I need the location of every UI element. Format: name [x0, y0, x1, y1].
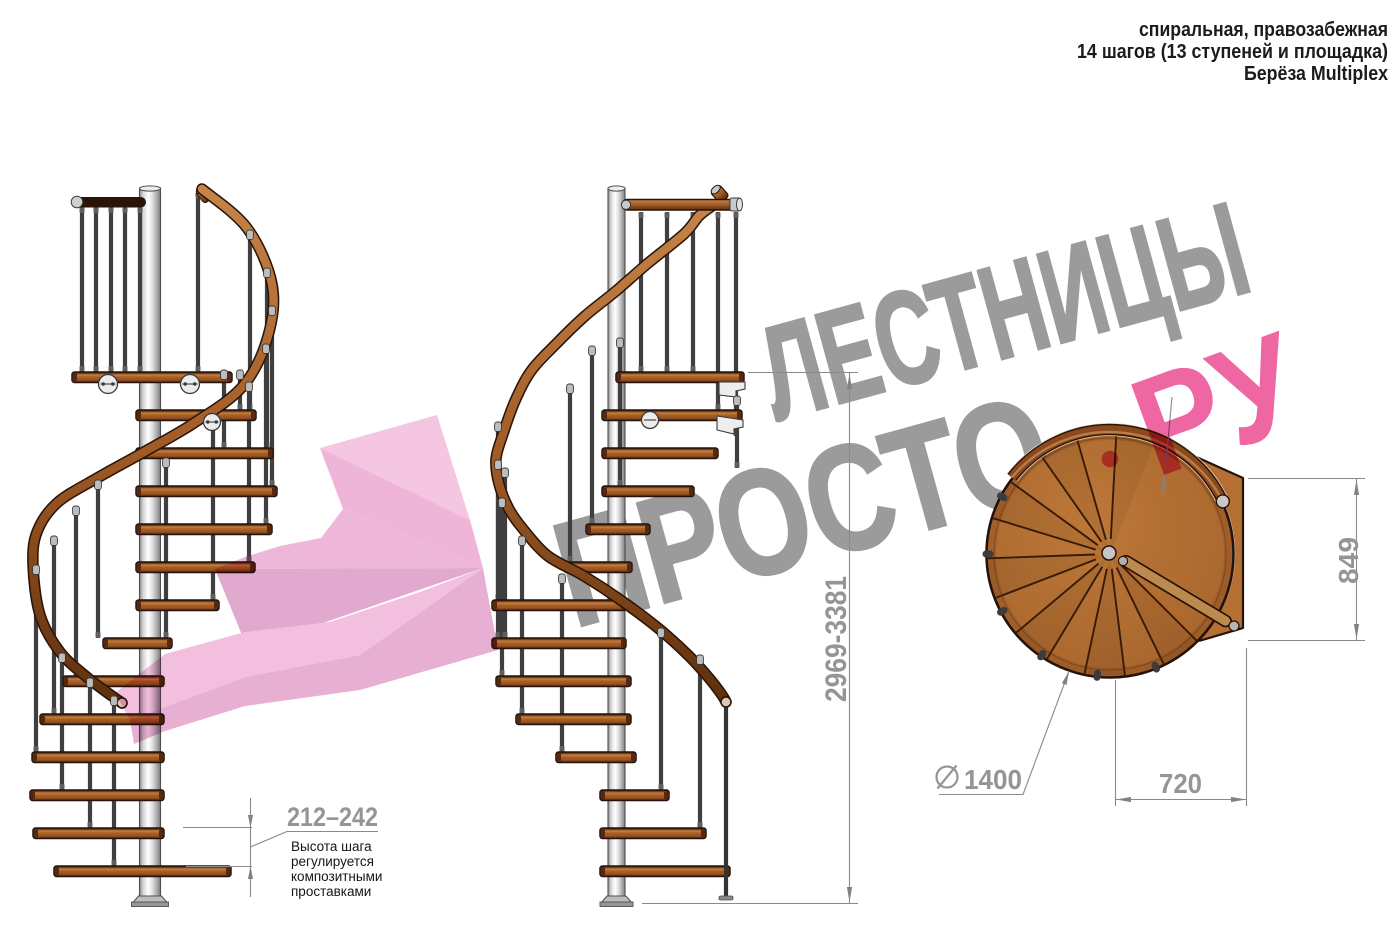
svg-text:14 шагов (13 ступеней и площад: 14 шагов (13 ступеней и площадка)	[1077, 41, 1388, 63]
svg-text:композитными: композитными	[291, 869, 382, 884]
svg-text:спиральная, правозабежная: спиральная, правозабежная	[1139, 19, 1388, 41]
svg-text:Высота шага: Высота шага	[291, 839, 372, 854]
svg-text:849: 849	[1333, 537, 1364, 584]
svg-text:720: 720	[1159, 768, 1202, 799]
svg-text:1400: 1400	[964, 764, 1022, 795]
svg-text:2969-3381: 2969-3381	[820, 576, 853, 702]
svg-text:регулируется: регулируется	[291, 854, 374, 869]
svg-text:212–242: 212–242	[287, 802, 378, 832]
svg-text:проставками: проставками	[291, 884, 371, 899]
svg-text:Берёза Multiplex: Берёза Multiplex	[1244, 63, 1388, 85]
